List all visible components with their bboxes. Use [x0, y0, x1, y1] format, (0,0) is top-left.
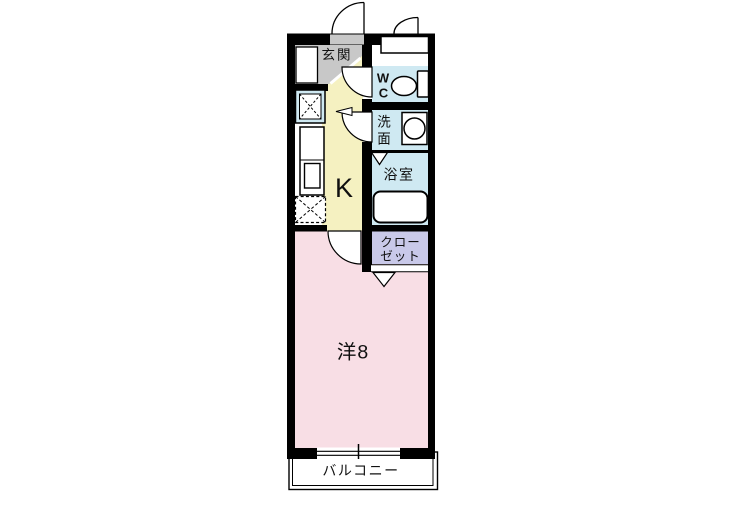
- wall-kitchen-room: [287, 225, 327, 232]
- wall-wc-washroom: [372, 102, 428, 110]
- storage-door-arc: [394, 18, 418, 34]
- wall-bathroom-closet: [362, 225, 435, 232]
- wall-wc-left-lower: [362, 99, 372, 112]
- toilet-tank-icon: [418, 71, 429, 97]
- shoe-cabinet-icon: [296, 47, 318, 83]
- bathroom-label: 浴室: [384, 167, 415, 183]
- kitchen-label: K: [335, 173, 353, 203]
- floorplan-canvas: 玄関 W C 洗 面 浴室 クロー ゼット K 洋8 バルコニー: [0, 0, 730, 515]
- exterior-door-arcs: [332, 3, 418, 34]
- entrance-door-arc: [332, 3, 364, 34]
- wall-left: [287, 34, 295, 460]
- closet-label-line2: ゼット: [380, 250, 421, 264]
- toilet-bowl-icon: [392, 77, 417, 96]
- balcony-label: バルコニー: [322, 463, 399, 479]
- wall-wc-left-upper: [362, 45, 372, 68]
- floorplan-drawing: 玄関 W C 洗 面 浴室 クロー ゼット K 洋8 バルコニー: [0, 0, 730, 515]
- outdoor-storage-box: [381, 37, 429, 54]
- wc-label-line2: C: [379, 86, 389, 101]
- wall-bath-left: [362, 142, 372, 272]
- closet-door-track: [371, 265, 428, 273]
- closet-label-line1: クロー: [380, 236, 421, 250]
- wall-right: [428, 34, 435, 460]
- kitchen-fixtures: [296, 90, 326, 223]
- kitchen-sink-icon: [305, 164, 321, 189]
- washroom-label-line1: 洗: [377, 115, 391, 130]
- bathtub-icon: [374, 192, 428, 223]
- entrance-label: 玄関: [322, 47, 353, 63]
- washroom-label-line2: 面: [377, 132, 391, 147]
- main-room-label: 洋8: [337, 342, 369, 364]
- entrance-door-opening: [330, 35, 364, 45]
- wc-label-line1: W: [377, 71, 390, 86]
- sink-bowl-icon: [404, 118, 425, 139]
